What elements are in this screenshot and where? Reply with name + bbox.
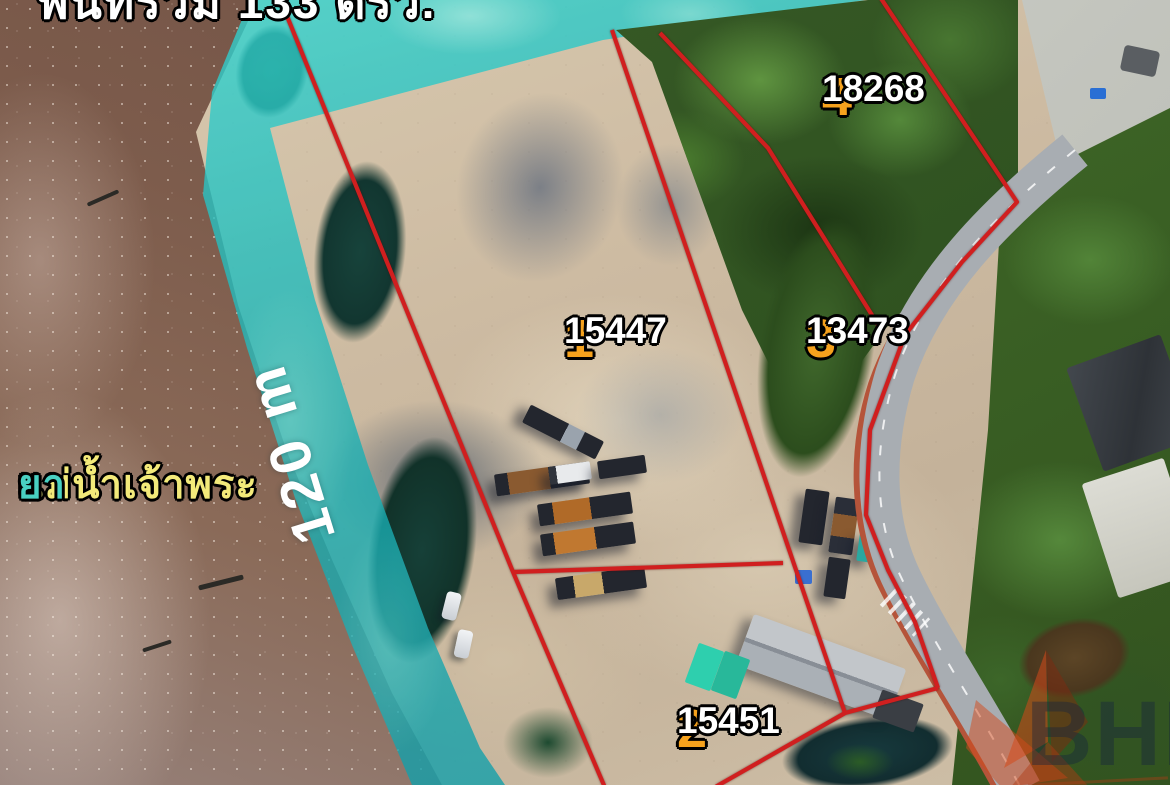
bhl-logo-icon: [0, 0, 1170, 785]
plot-number: 4: [822, 70, 852, 125]
crosswalk: [888, 596, 922, 628]
roadside-vegetation: [0, 0, 1170, 785]
canal-plants: [815, 738, 905, 785]
plot-number: 2: [677, 702, 707, 757]
house-driveway: [1082, 458, 1170, 599]
boat: [198, 575, 244, 591]
gravel-patch: [396, 31, 683, 344]
truck: [522, 404, 604, 459]
shore-vegetation: [332, 392, 512, 709]
plot2-south-line: [710, 713, 845, 785]
car: [441, 591, 462, 622]
gravel-patch: [595, 120, 745, 290]
shore-vegetation: [488, 695, 608, 785]
truck: [823, 557, 850, 600]
road-brick-shoulder: [862, 172, 1048, 785]
truck: [548, 461, 592, 485]
plot-labels-layer: 115447215451313473418268: [0, 0, 1170, 785]
truck: [540, 522, 636, 557]
area-banner: พื้นที่รวม 133 ตรว.: [38, 0, 436, 39]
plot2-road-connector: [845, 688, 938, 713]
boat: [142, 639, 172, 652]
truck: [597, 455, 647, 480]
plot1-plot2-divider: [513, 563, 783, 572]
building-roof: [872, 689, 924, 732]
canal-water: [755, 695, 979, 785]
truck: [828, 497, 860, 556]
river-water: [0, 0, 1170, 785]
truck: [798, 489, 829, 546]
shore-vegetation: [288, 126, 432, 377]
car: [453, 629, 473, 660]
truck: [555, 566, 647, 600]
plot-area-value: 15451: [677, 702, 780, 740]
cleared-land: [0, 0, 1170, 785]
gravel-patch: [545, 320, 775, 510]
teal-canopy: [685, 643, 725, 692]
east-roadside-line: [866, 0, 1017, 688]
sand-ground: [0, 0, 1170, 785]
blue-container: [1090, 88, 1106, 99]
machinery: [1120, 45, 1161, 78]
aerial-land-plot-map: พื้นที่รวม 133 ตรว. แม่น้ำเจ้าพระยา 120 …: [0, 0, 1170, 785]
road: [0, 0, 1170, 785]
truck: [537, 492, 633, 527]
teal-canopy: [711, 651, 751, 700]
river-name-teal: ยา: [18, 452, 66, 516]
truck: [494, 462, 590, 497]
plot-number: 3: [806, 312, 836, 367]
plot-area-value: 18268: [822, 70, 925, 108]
plot1-plot3-divider: [612, 30, 845, 713]
plot-area-value: 15447: [564, 312, 667, 350]
waterfront-highlight-overlay: [0, 0, 1170, 785]
truck: [856, 533, 878, 563]
boat: [87, 189, 120, 206]
west-riverside-line: [278, 0, 606, 785]
plot-area-value: 13473: [806, 312, 909, 350]
house-roof: [1066, 334, 1170, 472]
plot3-plot4-divider: [660, 33, 880, 328]
building-roof: [736, 614, 907, 720]
plot-number: 1: [564, 312, 594, 367]
watermark-text: BHL: [1026, 682, 1170, 785]
plot4-vegetation: [0, 0, 1170, 785]
plot3-vegetation: [716, 165, 918, 529]
plot-boundaries: [0, 0, 1170, 785]
blue-tarp: [795, 570, 812, 584]
